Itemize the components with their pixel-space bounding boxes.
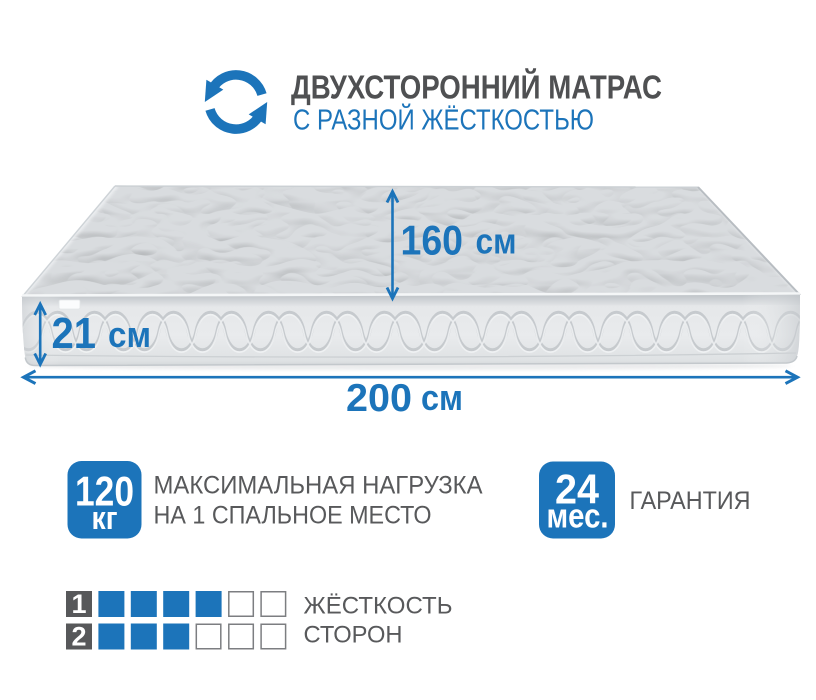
svg-text:С РАЗНОЙ ЖЁСТКОСТЬЮ: С РАЗНОЙ ЖЁСТКОСТЬЮ — [293, 103, 594, 137]
svg-text:см: см — [476, 221, 517, 262]
svg-text:см: см — [108, 314, 151, 355]
svg-text:21: 21 — [52, 310, 97, 358]
svg-text:ГАРАНТИЯ: ГАРАНТИЯ — [630, 487, 751, 515]
svg-text:см: см — [421, 377, 463, 418]
svg-text:160: 160 — [401, 217, 464, 264]
svg-text:ЖЁСТКОСТЬ: ЖЁСТКОСТЬ — [304, 593, 453, 620]
svg-text:200: 200 — [346, 377, 412, 420]
svg-text:1: 1 — [71, 589, 86, 619]
svg-text:кг: кг — [92, 500, 118, 536]
svg-text:2: 2 — [71, 622, 86, 652]
svg-text:НА 1 СПАЛЬНОЕ МЕСТО: НА 1 СПАЛЬНОЕ МЕСТО — [154, 502, 432, 530]
svg-text:мес.: мес. — [547, 498, 609, 536]
svg-text:СТОРОН: СТОРОН — [304, 622, 403, 649]
svg-text:ДВУХСТОРОННИЙ МАТРАС: ДВУХСТОРОННИЙ МАТРАС — [291, 68, 662, 106]
svg-text:МАКСИМАЛЬНАЯ НАГРУЗКА: МАКСИМАЛЬНАЯ НАГРУЗКА — [154, 472, 483, 500]
